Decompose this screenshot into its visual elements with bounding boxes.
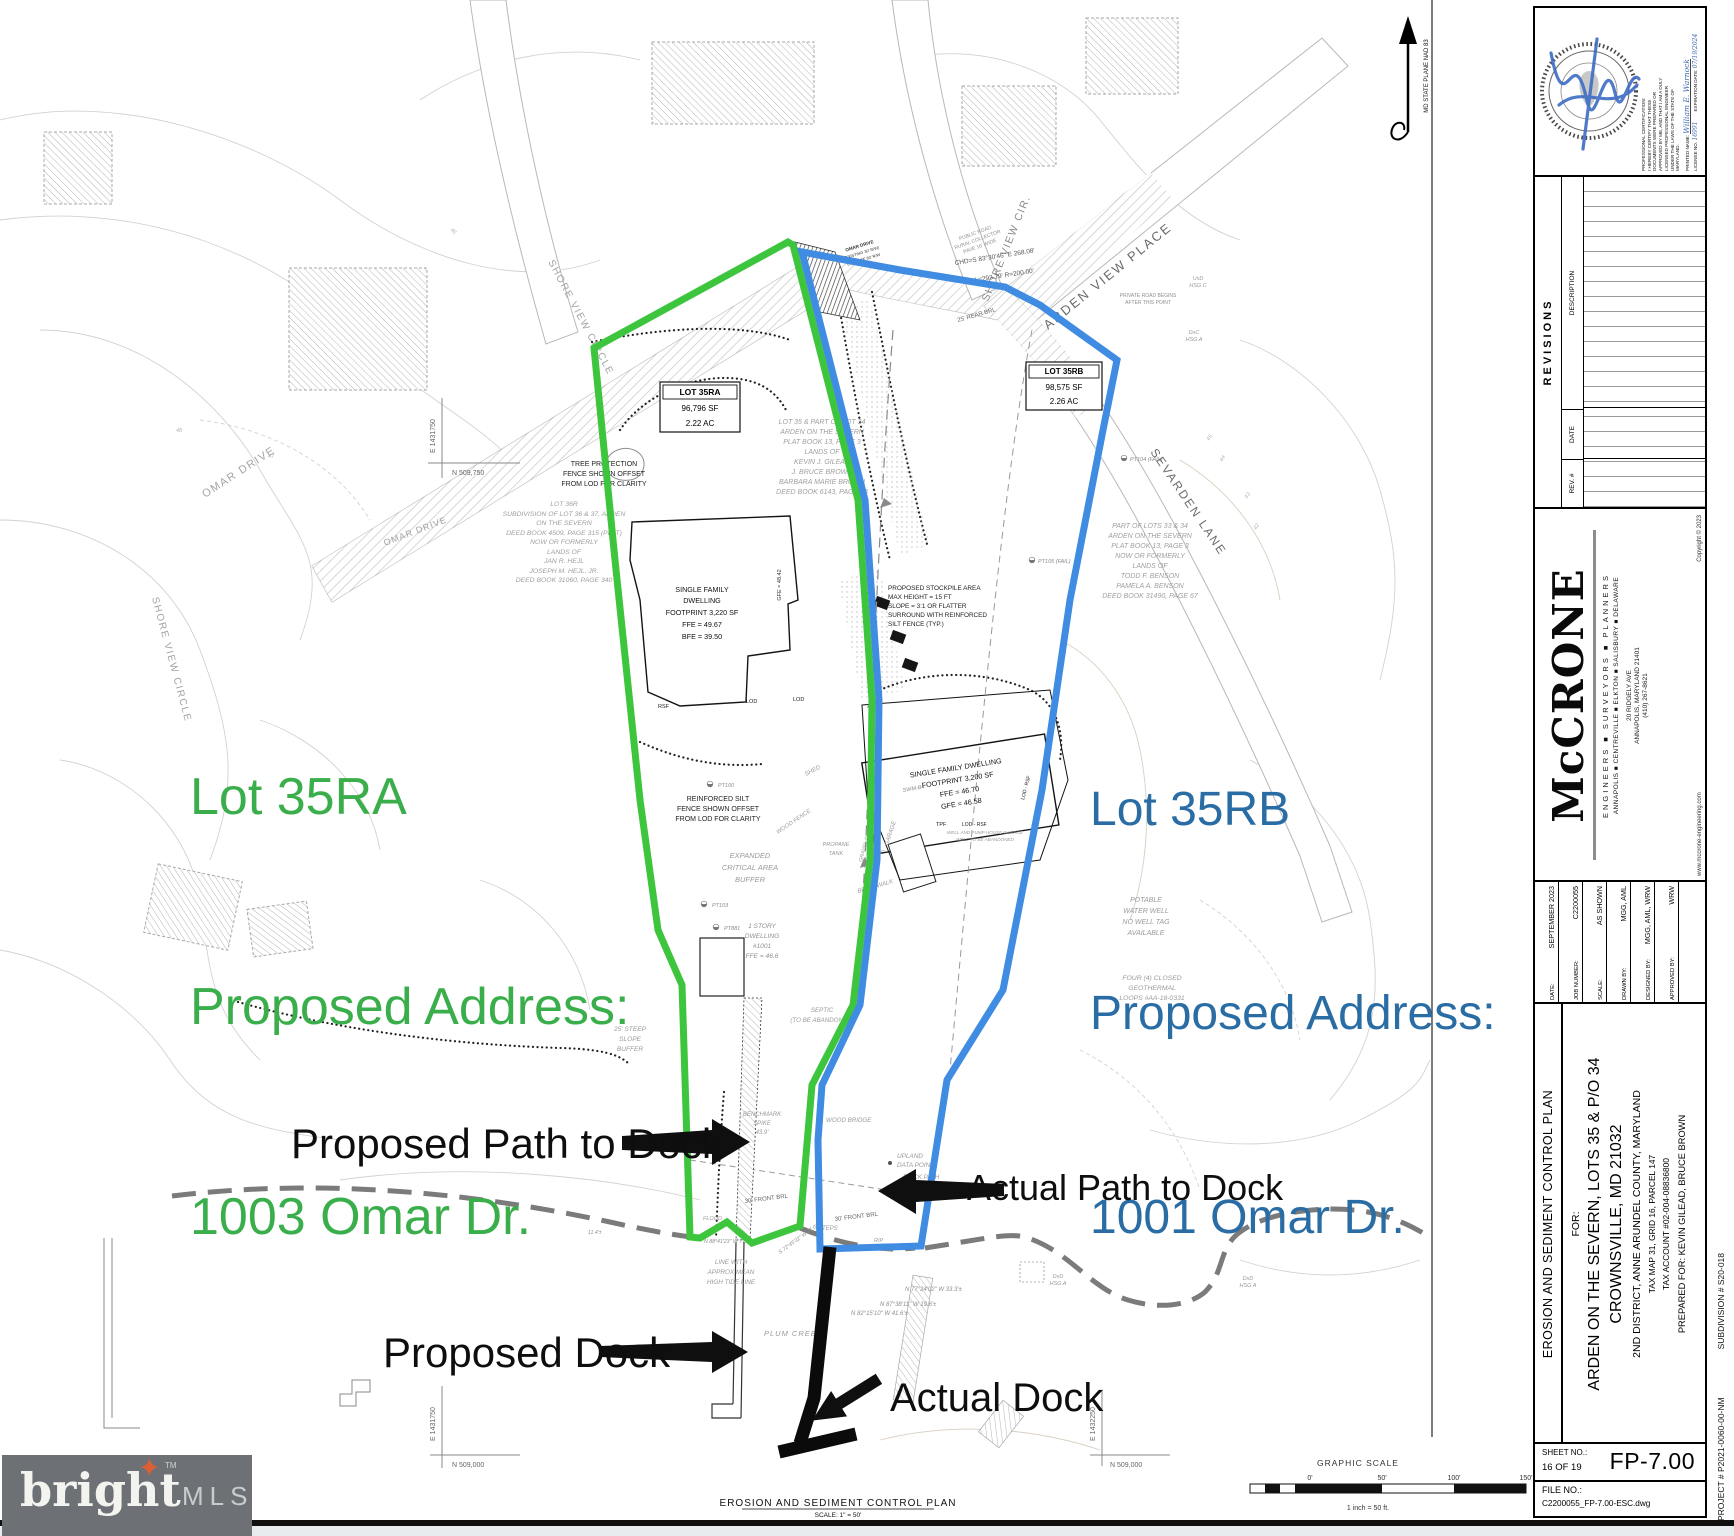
- project-name-2: CROWNSVILLE, MD 21032: [1607, 1004, 1626, 1444]
- svg-text:EROSION AND SEDIMENT CONTROL P: EROSION AND SEDIMENT CONTROL PLAN: [720, 1498, 957, 1509]
- svg-text:E 1431750: E 1431750: [430, 1407, 437, 1441]
- svg-text:SURROUND WITH REINFORCED: SURROUND WITH REINFORCED: [888, 612, 987, 619]
- svg-text:DxC: DxC: [1189, 330, 1200, 336]
- firm-tagline-1: ENGINEERS ■ SURVEYORS ■ PLANNERS: [1601, 509, 1610, 882]
- sheet-number: FP-7.00: [1610, 1448, 1695, 1475]
- svg-text:TPF: TPF: [936, 822, 947, 828]
- svg-text:50': 50': [1377, 1475, 1386, 1482]
- rev-col-header: REV. #: [1561, 459, 1583, 507]
- svg-text:JOSEPH M. HEJL, JR.: JOSEPH M. HEJL, JR.: [528, 568, 598, 575]
- svg-text:LOT 36R: LOT 36R: [550, 501, 578, 508]
- dwelling-c-label: 1 STORYDWELLING #1001FFE = 46.6: [745, 923, 779, 960]
- svg-text:MAX HEIGHT = 15 FT: MAX HEIGHT = 15 FT: [888, 594, 952, 601]
- svg-text:APPROX MEAN: APPROX MEAN: [707, 1269, 755, 1276]
- date-col-header: DATE: [1561, 409, 1583, 459]
- svg-text:SHED: SHED: [804, 764, 822, 777]
- svg-text:N 87°38'11" W 19.6'±: N 87°38'11" W 19.6'±: [880, 1302, 937, 1308]
- description-col-header: DESCRIPTION: [1561, 177, 1583, 409]
- svg-text:LOT 35 & PART OF LOT 34: LOT 35 & PART OF LOT 34: [779, 419, 866, 426]
- engineer-seal: [1537, 9, 1641, 175]
- certification-text: PROFESSIONAL CERTIFICATION: I HEREBY CER…: [1641, 11, 1703, 171]
- svg-text:PT103: PT103: [712, 903, 729, 909]
- svg-text:REINFORCED SILT: REINFORCED SILT: [687, 796, 750, 803]
- svg-text:ARDEN ON THE SEVERN: ARDEN ON THE SEVERN: [1107, 533, 1193, 540]
- graphic-scale: GRAPHIC SCALE 0' 50' 100' 150' 1 inch = …: [1250, 1458, 1533, 1512]
- svg-text:N 509,000: N 509,000: [1110, 1462, 1142, 1469]
- svg-text:NOW OR FORMERLY: NOW OR FORMERLY: [1115, 553, 1186, 560]
- info-value: C2200055: [1571, 886, 1580, 919]
- svg-text:PROPANE: PROPANE: [823, 842, 850, 848]
- info-section: DATE:SEPTEMBER 2023 JOB NUMBER:C2200055 …: [1535, 880, 1705, 1002]
- svg-text:LOT 35RA: LOT 35RA: [679, 387, 720, 397]
- svg-text:1 STORY: 1 STORY: [748, 923, 776, 930]
- firm-copyright: Copyright © 2023: [1697, 515, 1703, 562]
- svg-text:100': 100': [1447, 1475, 1460, 1482]
- svg-text:PT100: PT100: [718, 783, 735, 789]
- info-label: SCALE:: [1598, 979, 1604, 1000]
- lot-35rb-title: Lot 35RB: [1090, 776, 1496, 844]
- lot-35rb-box: LOT 35RB 98,575 SF 2.26 AC: [1026, 362, 1102, 410]
- svg-text:GRAPHIC SCALE: GRAPHIC SCALE: [1317, 1458, 1399, 1468]
- svg-text:HSG A: HSG A: [1186, 337, 1203, 343]
- north-label: MD STATE PLANE NAD 83: [1424, 39, 1430, 113]
- svg-text:SEPTIC: SEPTIC: [811, 1007, 834, 1014]
- private-road-note-2: AFTER THIS POINT: [1125, 300, 1171, 306]
- svg-text:UPLAND: UPLAND: [897, 1153, 923, 1160]
- expiration-label: EXPIRATION DATE:: [1693, 70, 1698, 112]
- info-label: DATE:: [1550, 983, 1556, 1000]
- file-name: C2200055_FP-7.00-ESC.dwg: [1542, 1499, 1650, 1508]
- dwelling-a-gfe: GFE = 48.42: [777, 569, 783, 600]
- svg-text:LANDS OF: LANDS OF: [1132, 563, 1168, 570]
- svg-text:#1001: #1001: [753, 943, 772, 950]
- sheet-number-box: SHEET NO.: 16 OF 19 FP-7.00: [1535, 1442, 1705, 1480]
- svg-text:96,796 SF: 96,796 SF: [682, 404, 719, 413]
- svg-text:47: 47: [268, 454, 275, 460]
- info-value: WRW: [1667, 886, 1676, 905]
- subdivision-number: SUBDIVISION # S20-018: [1716, 1253, 1726, 1349]
- info-value: MGG, AML: [1619, 886, 1628, 922]
- svg-text:SPIKE: SPIKE: [753, 1121, 772, 1127]
- file-number-box: FILE NO.: C2200055_FP-7.00-ESC.dwg: [1535, 1480, 1705, 1516]
- svg-text:42: 42: [1253, 523, 1261, 531]
- svg-text:HSG C: HSG C: [1189, 283, 1206, 289]
- info-label: DESIGNED BY:: [1646, 959, 1652, 1000]
- svg-text:LOT 35RB: LOT 35RB: [1045, 367, 1084, 376]
- svg-text:LOD - RSF: LOD - RSF: [962, 822, 987, 828]
- actual-dock-label: Actual Dock: [890, 1376, 1103, 1421]
- actual-path-label: Actual Path to Dock: [967, 1167, 1283, 1209]
- svg-text:WELL AND PUMP HOUSE GARAGE: WELL AND PUMP HOUSE GARAGE: [947, 830, 1024, 835]
- svg-text:CRITICAL AREA: CRITICAL AREA: [722, 863, 778, 872]
- svg-text:RIP: RIP: [874, 1238, 884, 1244]
- svg-text:E 1431750: E 1431750: [430, 419, 437, 453]
- lot-35ra-title: Lot 35RA: [190, 762, 629, 832]
- svg-text:FFE = 49.67: FFE = 49.67: [682, 620, 722, 629]
- below-sheet-strip: [0, 1526, 1734, 1536]
- firm-logo: McCRONE: [1547, 509, 1591, 882]
- firm-address-2: ANNAPOLIS, MARYLAND 21401: [1634, 509, 1642, 882]
- svg-text:FOOTPRINT 3,220 SF: FOOTPRINT 3,220 SF: [666, 608, 739, 617]
- svg-text:TANK: TANK: [829, 851, 844, 857]
- svg-text:0': 0': [1307, 1475, 1312, 1482]
- project-number: PROJECT # P2021-0060-00-NM: [1716, 1397, 1726, 1521]
- lot-35ra-address: 1003 Omar Dr.: [190, 1182, 629, 1252]
- svg-text:DEED BOOK 31060, PAGE 340: DEED BOOK 31060, PAGE 340: [516, 577, 613, 584]
- project-taxaccount: TAX ACCOUNT #02-004-08836800: [1661, 1004, 1671, 1444]
- revisions-title: REVISIONS: [1535, 177, 1561, 507]
- north-arrow: MD STATE PLANE NAD 83: [1391, 16, 1430, 139]
- firm-website: www.mccrone-engineering.com: [1697, 792, 1703, 876]
- svg-text:N 77°24'02" W 33.3'±: N 77°24'02" W 33.3'±: [905, 1287, 963, 1293]
- svg-text:WOOD BRIDGE: WOOD BRIDGE: [826, 1117, 872, 1124]
- svg-text:TODD F. BENSON: TODD F. BENSON: [1121, 573, 1180, 580]
- stockpile-note: PROPOSED STOCKPILE AREAMAX HEIGHT = 15 F…: [888, 585, 987, 628]
- firm-address-1: 20 RIDGELY AVE: [1626, 509, 1634, 882]
- svg-text:FLOOD: FLOOD: [703, 1216, 722, 1222]
- svg-text:LOD: LOD: [746, 699, 757, 705]
- svg-text:LANDS OF: LANDS OF: [804, 449, 840, 456]
- svg-text:J. BRUCE BROWN: J. BRUCE BROWN: [791, 469, 854, 476]
- svg-text:FROM LOD FOR CLARITY: FROM LOD FOR CLARITY: [675, 816, 761, 823]
- proposed-dock-label: Proposed Dock: [383, 1329, 670, 1377]
- project-section: EROSION AND SEDIMENT CONTROL PLAN FOR: A…: [1535, 1002, 1705, 1442]
- svg-text:NOW OR FORMERLY: NOW OR FORMERLY: [530, 539, 598, 546]
- proposed-path-label: Proposed Path to Dock: [291, 1120, 723, 1168]
- svg-text:EXPANDED: EXPANDED: [730, 851, 771, 860]
- svg-text:N 509,750: N 509,750: [452, 470, 484, 477]
- road-omar-1: OMAR DRIVE: [200, 444, 278, 500]
- firm-tagline-2: ANNAPOLIS ■ CENTREVILLE ■ ELKTON ■ SALIS…: [1613, 509, 1620, 882]
- svg-text:N 82°15'10" W 41.6'±: N 82°15'10" W 41.6'±: [851, 1311, 909, 1317]
- svg-text:SLOPE = 3:1 OR FLATTER: SLOPE = 3:1 OR FLATTER: [888, 603, 967, 610]
- svg-text:UxD: UxD: [1193, 276, 1204, 282]
- svg-text:DATA POINT: DATA POINT: [897, 1162, 935, 1169]
- file-no-label: FILE NO.:: [1542, 1485, 1582, 1495]
- license-number: 16991: [1692, 122, 1699, 141]
- svg-text:RSF: RSF: [658, 704, 670, 710]
- firm-phone: (410) 267-8621: [1642, 509, 1650, 882]
- front-brl-2: 30' FRONT BRL: [835, 1212, 879, 1223]
- svg-text:2.22 AC: 2.22 AC: [686, 419, 715, 428]
- svg-text:SILT FENCE (TYP.): SILT FENCE (TYP.): [888, 621, 944, 628]
- svg-text:SINGLE FAMILY: SINGLE FAMILY: [675, 585, 729, 594]
- plan-title: EROSION AND SEDIMENT CONTROL PLAN SCALE:…: [720, 1498, 957, 1519]
- edge-project-ids: PROJECT # P2021-0060-00-NM SUBDIVISION #…: [1709, 835, 1733, 1525]
- info-label: JOB NUMBER:: [1574, 960, 1580, 1000]
- info-value: MGG, AML, WRW: [1643, 886, 1652, 944]
- svg-text:PLUM CREEK: PLUM CREEK: [764, 1329, 823, 1338]
- lot-35rb-addr-label: Proposed Address:: [1090, 980, 1496, 1048]
- trademark-symbol: TM: [165, 1461, 177, 1470]
- info-value: SEPTEMBER 2023: [1547, 886, 1556, 948]
- lot-35ra-box: LOT 35RA 96,796 SF 2.22 AC: [660, 382, 740, 432]
- svg-text:DvD: DvD: [1053, 1274, 1064, 1280]
- svg-text:KEVIN J. GILEAD: KEVIN J. GILEAD: [794, 459, 850, 466]
- silt-fence-note: REINFORCED SILTFENCE SHOWN OFFSETFROM LO…: [675, 796, 761, 823]
- logo-rule: [1593, 531, 1596, 861]
- svg-text:PAMELA A. BENSON: PAMELA A. BENSON: [1116, 583, 1184, 590]
- svg-text:BENCHMARK: BENCHMARK: [743, 1112, 782, 1118]
- info-value: AS SHOWN: [1595, 886, 1604, 925]
- svg-text:LINE WITH: LINE WITH: [715, 1259, 748, 1266]
- svg-text:44: 44: [1219, 455, 1227, 463]
- license-label: LICENSE NO.: [1693, 142, 1698, 171]
- svg-text:DEED BOOK 31490, PAGE 67: DEED BOOK 31490, PAGE 67: [1102, 593, 1199, 600]
- svg-text:BFE = 39.50: BFE = 39.50: [682, 632, 722, 641]
- svg-text:BUFFER: BUFFER: [735, 875, 766, 884]
- project-name-1: ARDEN ON THE SEVERN, LOTS 35 & P/O 34: [1585, 1004, 1604, 1444]
- svg-text:PROPOSED STOCKPILE AREA: PROPOSED STOCKPILE AREA: [888, 585, 981, 592]
- svg-text:PT105 (FAIL): PT105 (FAIL): [1038, 559, 1071, 565]
- sheet-no-label: SHEET NO.:: [1542, 1448, 1587, 1457]
- for-label: FOR:: [1570, 1004, 1582, 1444]
- bright-mls-logo: bright ✦ TM MLS: [2, 1455, 252, 1536]
- svg-text:1 inch = 50 ft.: 1 inch = 50 ft.: [1347, 1505, 1389, 1512]
- svg-text:HIGH TIDE LINE: HIGH TIDE LINE: [707, 1279, 756, 1286]
- svg-text:DEED BOOK 4509, PAGE 315 (PLAT: DEED BOOK 4509, PAGE 315 (PLAT): [506, 530, 622, 537]
- svg-text:N 509,000: N 509,000: [452, 1462, 484, 1469]
- printed-name: William E. Warnock: [1684, 59, 1691, 134]
- svg-text:ON THE SEVERN: ON THE SEVERN: [536, 520, 592, 527]
- lot-35rb-callout: Lot 35RB Proposed Address: 1001 Omar Dr.: [1090, 640, 1496, 1320]
- svg-text:45: 45: [1206, 433, 1215, 442]
- svg-text:WELL TO BE ABANDONED: WELL TO BE ABANDONED: [956, 837, 1014, 842]
- svg-text:PART OF LOTS 33 & 34: PART OF LOTS 33 & 34: [1112, 523, 1188, 530]
- svg-text:WOOD FENCE: WOOD FENCE: [776, 808, 813, 835]
- plan-sheet: OMAR DRIVE OMAR DRIVE OMAR DRIVE (EXISTI…: [0, 0, 1734, 1536]
- project-taxmap: TAX MAP 31, GRID 16, PARCEL 147: [1647, 1004, 1657, 1444]
- svg-text:PLAT BOOK 13, PAGE 3: PLAT BOOK 13, PAGE 3: [1111, 543, 1189, 550]
- mls-wordmark: MLS: [182, 1481, 253, 1512]
- project-district: 2ND DISTRICT, ANNE ARUNDEL COUNTY, MARYL…: [1631, 1004, 1643, 1444]
- private-road-note-1: PRIVATE ROAD BEGINS: [1120, 293, 1177, 299]
- seal-section: PROFESSIONAL CERTIFICATION: I HEREBY CER…: [1535, 8, 1705, 177]
- svg-text:JAN R. HEJL: JAN R. HEJL: [543, 558, 584, 565]
- star-icon: ✦: [138, 1453, 161, 1484]
- svg-text:PT881: PT881: [724, 926, 740, 932]
- cert-line: MARYLAND.: [1675, 11, 1681, 171]
- svg-text:HSG A: HSG A: [1050, 1281, 1067, 1287]
- svg-text:FENCE SHOWN OFFSET: FENCE SHOWN OFFSET: [677, 806, 760, 813]
- svg-text:LANDS OF: LANDS OF: [547, 549, 582, 556]
- lot-35ra-callout: Lot 35RA Proposed Address: 1003 Omar Dr.: [190, 622, 629, 1322]
- lot-35ra-addr-label: Proposed Address:: [190, 972, 629, 1042]
- svg-text:48: 48: [176, 428, 183, 434]
- firm-section: McCRONE ENGINEERS ■ SURVEYORS ■ PLANNERS…: [1535, 507, 1705, 880]
- plan-type: EROSION AND SEDIMENT CONTROL PLAN: [1535, 1004, 1563, 1444]
- revisions-section: REVISIONS REV. # DATE DESCRIPTION: [1535, 177, 1705, 507]
- svg-text:FFE = 46.6: FFE = 46.6: [746, 953, 779, 960]
- info-label: DRAWN BY:: [1622, 968, 1628, 1000]
- svg-text:DWELLING: DWELLING: [745, 933, 779, 940]
- svg-text:43.9': 43.9': [756, 1130, 770, 1136]
- info-label: APPROVED BY:: [1670, 957, 1676, 1000]
- sheet-pages: 16 OF 19: [1542, 1462, 1582, 1473]
- svg-text:SCALE: 1" = 50': SCALE: 1" = 50': [815, 1512, 862, 1519]
- svg-text:PT104 (FAIL): PT104 (FAIL): [1130, 457, 1163, 463]
- svg-text:LOD: LOD: [793, 697, 804, 703]
- svg-text:43: 43: [1244, 491, 1253, 500]
- road-shoreview-2: SHORE VIEW CIRCLE: [149, 596, 193, 723]
- svg-text:150': 150': [1519, 1475, 1532, 1482]
- svg-text:98,575 SF: 98,575 SF: [1046, 383, 1083, 392]
- printed-name-label: PRINTED NAME:: [1685, 135, 1690, 171]
- prepared-for: PREPARED FOR: KEVIN GILEAD, BRUCE BROWN: [1677, 1004, 1687, 1444]
- actual-dock-line: [779, 1247, 856, 1452]
- svg-text:2.26 AC: 2.26 AC: [1050, 397, 1079, 406]
- title-block: PROFESSIONAL CERTIFICATION: I HEREBY CER…: [1533, 6, 1707, 1518]
- expiration-date: 07/19/2024: [1692, 34, 1699, 69]
- svg-text:DWELLING: DWELLING: [683, 596, 721, 605]
- svg-text:46: 46: [449, 227, 458, 236]
